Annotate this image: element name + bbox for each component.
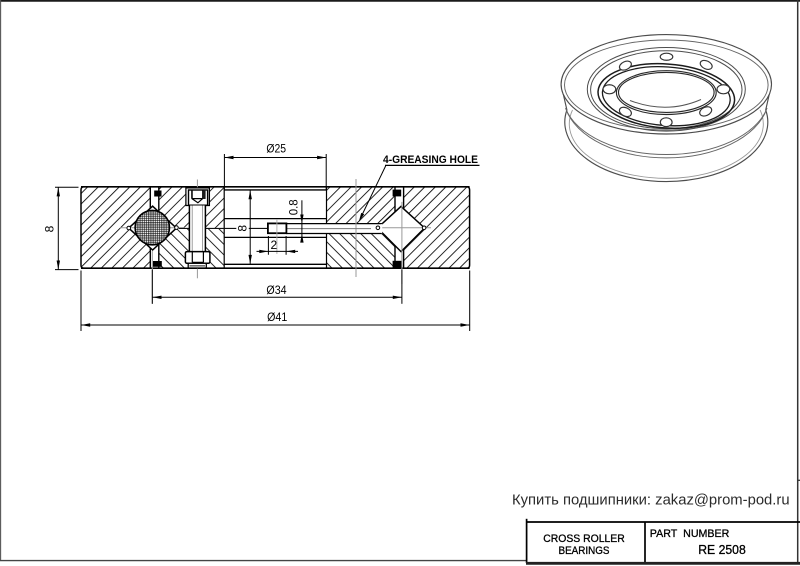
svg-text:BEARINGS: BEARINGS [559, 545, 610, 557]
svg-text:Купить подшипники: zakaz@prom-: Купить подшипники: zakaz@prom-pod.ru [512, 493, 790, 509]
svg-text:Ø25: Ø25 [266, 142, 286, 156]
svg-text:Ø41: Ø41 [267, 310, 287, 324]
svg-text:RE 2508: RE 2508 [698, 542, 746, 557]
svg-text:PART NUMBER: PART NUMBER [650, 528, 730, 540]
svg-text:8: 8 [43, 225, 57, 232]
svg-text:2: 2 [271, 238, 278, 252]
svg-text:CROSS ROLLER: CROSS ROLLER [543, 533, 625, 545]
svg-text:4-GREASING HOLE: 4-GREASING HOLE [383, 154, 478, 166]
svg-text:8: 8 [236, 225, 250, 232]
svg-text:0.8: 0.8 [287, 199, 301, 215]
svg-text:Ø34: Ø34 [266, 283, 286, 297]
